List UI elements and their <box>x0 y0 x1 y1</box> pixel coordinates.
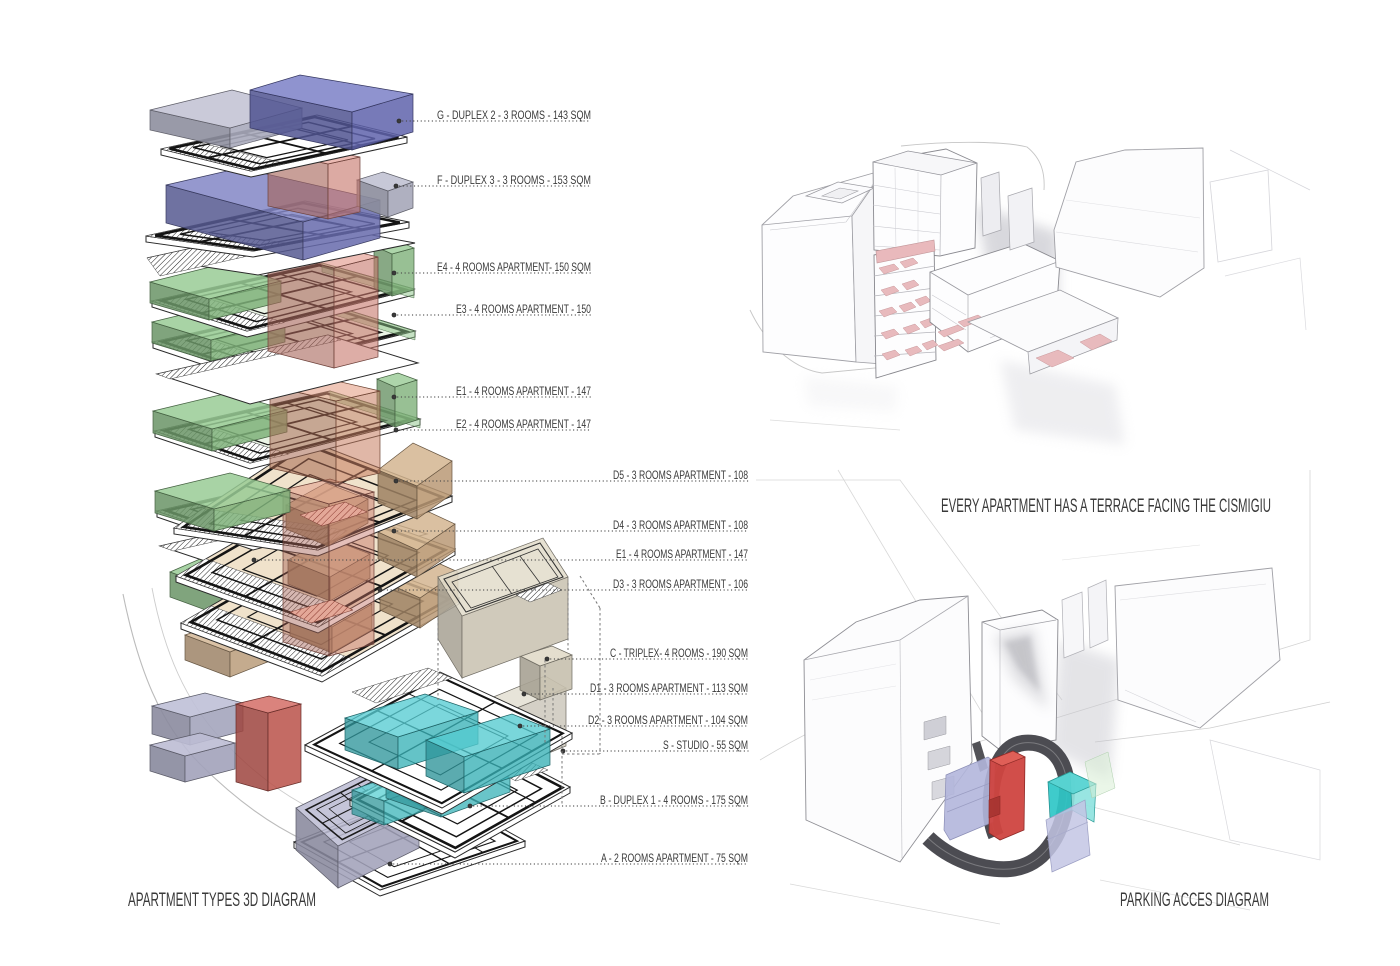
svg-text:D2 - 3 ROOMS APARTMENT - 104 S: D2 - 3 ROOMS APARTMENT - 104 SQM <box>588 715 748 727</box>
svg-text:EVERY APARTMENT HAS A TERRACE: EVERY APARTMENT HAS A TERRACE FACING THE… <box>941 495 1271 517</box>
svg-text:G - DUPLEX 2 - 3 ROOMS - 143 S: G - DUPLEX 2 - 3 ROOMS - 143 SQM <box>437 110 591 122</box>
svg-text:APARTMENT TYPES 3D DIAGRAM: APARTMENT TYPES 3D DIAGRAM <box>128 889 316 911</box>
svg-text:B - DUPLEX 1 - 4 ROOMS - 175 S: B - DUPLEX 1 - 4 ROOMS - 175 SQM <box>600 795 748 807</box>
svg-text:F - DUPLEX 3 - 3 ROOMS - 153 S: F - DUPLEX 3 - 3 ROOMS - 153 SQM <box>437 175 591 187</box>
svg-text:S - STUDIO - 55 SQM: S - STUDIO - 55 SQM <box>663 740 748 752</box>
svg-text:A - 2 ROOMS APARTMENT - 75 SQM: A - 2 ROOMS APARTMENT - 75 SQM <box>601 853 748 865</box>
svg-text:PARKING ACCES DIAGRAM: PARKING ACCES DIAGRAM <box>1120 889 1269 911</box>
svg-text:D5 - 3 ROOMS APARTMENT - 108: D5 - 3 ROOMS APARTMENT - 108 <box>613 470 748 482</box>
svg-text:E1 - 4 ROOMS APARTMENT - 147: E1 - 4 ROOMS APARTMENT - 147 <box>616 549 748 561</box>
svg-text:D1 - 3 ROOMS APARTMENT - 113 S: D1 - 3 ROOMS APARTMENT - 113 SQM <box>590 683 748 695</box>
svg-text:E3 - 4 ROOMS APARTMENT - 150: E3 - 4 ROOMS APARTMENT - 150 <box>456 304 591 316</box>
svg-text:E1 - 4 ROOMS APARTMENT - 147: E1 - 4 ROOMS APARTMENT - 147 <box>456 386 591 398</box>
svg-text:E2 - 4 ROOMS APARTMENT - 147: E2 - 4 ROOMS APARTMENT - 147 <box>456 419 591 431</box>
svg-text:E4 - 4 ROOMS APARTMENT- 150 SQ: E4 - 4 ROOMS APARTMENT- 150 SQM <box>437 262 591 274</box>
svg-text:D3 - 3 ROOMS APARTMENT - 106: D3 - 3 ROOMS APARTMENT - 106 <box>613 579 748 591</box>
svg-text:D4 - 3 ROOMS APARTMENT - 108: D4 - 3 ROOMS APARTMENT - 108 <box>613 520 748 532</box>
svg-text:C - TRIPLEX- 4 ROOMS - 190 SQM: C - TRIPLEX- 4 ROOMS - 190 SQM <box>610 648 748 660</box>
